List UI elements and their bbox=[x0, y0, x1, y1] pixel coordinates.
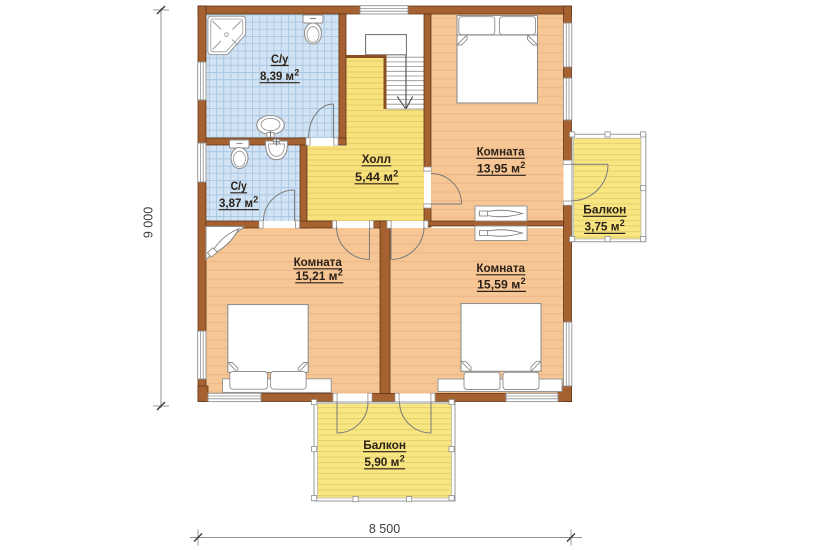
svg-text:Балкон: Балкон bbox=[583, 203, 626, 217]
svg-text:9 000: 9 000 bbox=[142, 207, 156, 238]
svg-text:2: 2 bbox=[338, 268, 343, 278]
svg-text:2: 2 bbox=[521, 276, 526, 286]
svg-text:2: 2 bbox=[520, 160, 525, 170]
svg-text:2: 2 bbox=[620, 218, 625, 228]
svg-text:2: 2 bbox=[400, 454, 405, 464]
svg-text:3,75 м: 3,75 м bbox=[585, 220, 620, 234]
svg-text:Балкон: Балкон bbox=[363, 438, 406, 452]
svg-text:15,21 м: 15,21 м bbox=[296, 269, 338, 283]
svg-text:2: 2 bbox=[294, 68, 299, 78]
svg-text:2: 2 bbox=[393, 169, 398, 179]
svg-text:Комната: Комната bbox=[476, 261, 525, 275]
svg-text:С/у: С/у bbox=[271, 52, 289, 66]
svg-text:С/у: С/у bbox=[231, 179, 247, 193]
svg-text:15,59 м: 15,59 м bbox=[477, 278, 520, 292]
svg-text:8,39 м: 8,39 м bbox=[260, 69, 294, 83]
svg-text:Комната: Комната bbox=[294, 255, 343, 269]
svg-text:5,44 м: 5,44 м bbox=[355, 170, 393, 184]
svg-text:2: 2 bbox=[253, 195, 258, 205]
svg-text:13,95 м: 13,95 м bbox=[477, 162, 520, 176]
svg-text:Комната: Комната bbox=[477, 145, 525, 159]
svg-text:3,87 м: 3,87 м bbox=[219, 196, 253, 210]
svg-text:Холл: Холл bbox=[362, 152, 391, 166]
svg-text:8 500: 8 500 bbox=[369, 522, 400, 536]
svg-text:5,90 м: 5,90 м bbox=[364, 455, 399, 469]
